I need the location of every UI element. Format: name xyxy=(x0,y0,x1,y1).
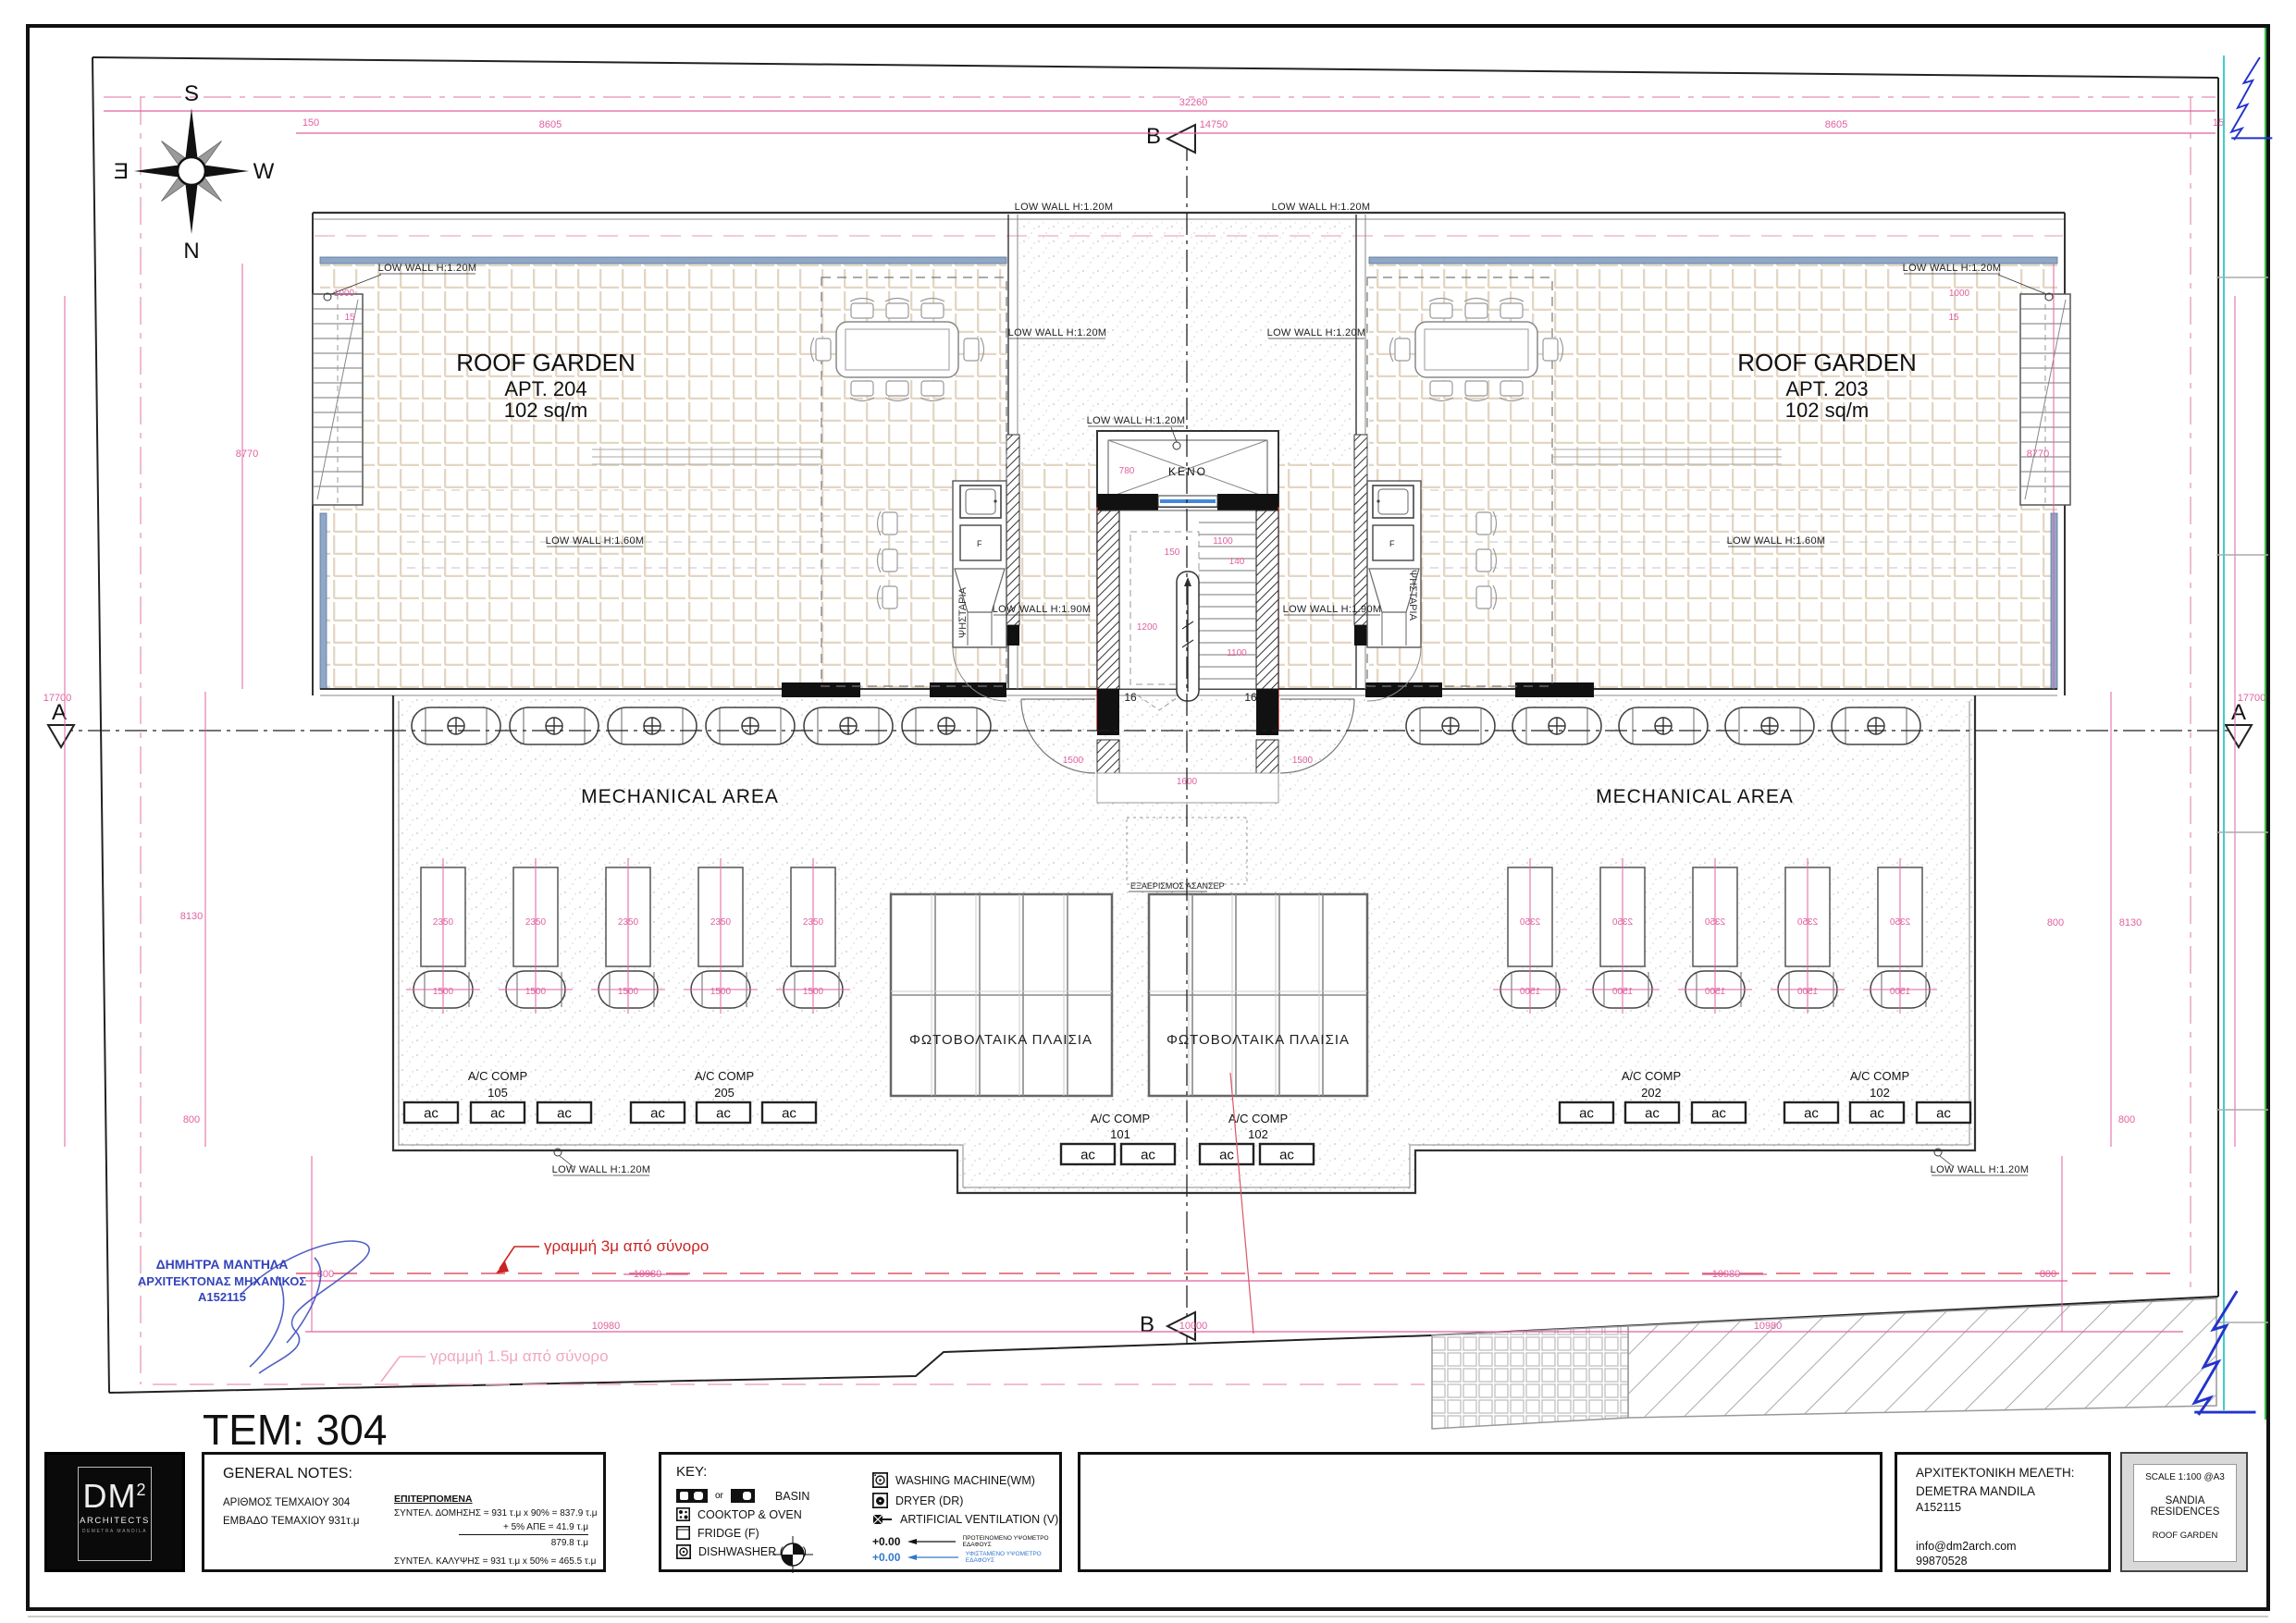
project-name-1: SANDIA xyxy=(2134,1495,2236,1506)
ac-comp-102r-number: 102 xyxy=(1870,1086,1890,1100)
logo-tagline: DEMETRA MANDILA xyxy=(79,1529,151,1534)
dim-8605-left: 8605 xyxy=(539,119,562,130)
key-or: or xyxy=(715,1491,723,1501)
notes-plot-area: ΕΜΒΑΔΟ ΤΕΜΑΧΙΟΥ 931τ.μ xyxy=(223,1516,360,1527)
bbq-label-left: ΨΗΣΤΑΡΙΑ xyxy=(957,586,969,638)
titleblock-logo: DM2 ARCHITECTS DEMETRA MANDILA xyxy=(44,1452,185,1572)
ac-comp-105-title: A/C COMP xyxy=(468,1069,527,1083)
key-level2-value: +0.00 xyxy=(872,1551,900,1564)
ac-comp-102c-number: 102 xyxy=(1248,1127,1268,1141)
notes-allowed-title: ΕΠΙΤΕΡΠΟΜΕΝΑ xyxy=(394,1494,473,1505)
dim-1200: 1200 xyxy=(1137,622,1158,633)
ac-comp-202-number: 202 xyxy=(1641,1086,1661,1100)
dim-17700-left: 17700 xyxy=(43,693,72,704)
dim-8130-right: 8130 xyxy=(2119,917,2142,928)
garden-left-title: ROOF GARDEN xyxy=(456,349,636,376)
titleblock-key: KEY: or BASIN COOKTOP & OVEN FRIDGE (F) … xyxy=(659,1452,1062,1572)
mechanical-area-right: MECHANICAL AREA xyxy=(1596,786,1794,807)
pv-label-left: ΦΩΤΟΒΟΛΤΑΙΚΑ ΠΛΑΙΣΙΑ xyxy=(909,1032,1092,1048)
dim-10980-c: 10980 xyxy=(592,1321,621,1332)
compass-icon: S N E W xyxy=(114,81,274,264)
dryer-icon xyxy=(872,1493,888,1508)
dim-800-topright: 800 xyxy=(2047,917,2064,928)
ac-comp-205-title: A/C COMP xyxy=(695,1069,754,1083)
line-15m-label: γραμμή 1.5μ από σύνορο xyxy=(430,1347,609,1365)
key-level1-value: +0.00 xyxy=(872,1535,900,1548)
section-marker-b-bottom: B xyxy=(1140,1312,1154,1337)
titleblock-empty xyxy=(1078,1452,1882,1572)
dim-150-top: 150 xyxy=(302,117,319,129)
road-hatch-area xyxy=(1432,1298,2216,1429)
ventilation-icon xyxy=(872,1514,893,1525)
dim-32260: 32260 xyxy=(1179,97,1208,108)
dim-10000: 10000 xyxy=(1179,1321,1208,1332)
bbq-label-right: ΨΗΣΤΑΡΙΑ xyxy=(1407,570,1418,621)
ac-comp-202-title: A/C COMP xyxy=(1622,1069,1681,1083)
notes-title: GENERAL NOTES: xyxy=(223,1466,352,1482)
dim-140: 140 xyxy=(1229,557,1245,567)
line-3m-label: γραμμή 3μ από σύνορο xyxy=(544,1237,709,1255)
logo-sup: 2 xyxy=(136,1481,146,1499)
architect-email: info@dm2arch.com xyxy=(1916,1540,2017,1553)
stair-right xyxy=(2020,294,2070,505)
low-wall-bottom-left: LOW WALL H:1.20M xyxy=(552,1164,651,1175)
low-wall-bottom-right: LOW WALL H:1.20M xyxy=(1931,1164,2030,1175)
dim-800-left: 800 xyxy=(183,1114,200,1125)
notes-plot-number: ΑΡΙΘΜΟΣ ΤΕΜΧΑΙΟΥ 304 xyxy=(223,1497,350,1508)
garden-right-apt: APT. 203 xyxy=(1785,377,1868,400)
basin-icon xyxy=(676,1489,708,1503)
level1-arrow-icon xyxy=(907,1538,955,1545)
notes-build-factor: ΣΥΝΤΕΛ. ΔΟΜΗΣΗΣ = 931 τ.μ x 90% = 837.9 … xyxy=(394,1508,598,1518)
dim-150c: 150 xyxy=(1165,547,1180,558)
dim-780: 780 xyxy=(1119,466,1135,476)
ac-comp-102c-title: A/C COMP xyxy=(1228,1112,1288,1125)
dim-800-bottomright: 800 xyxy=(2040,1269,2056,1280)
pv-label-right: ΦΩΤΟΒΟΛΤΑΙΚΑ ΠΛΑΙΣΙΑ xyxy=(1167,1032,1350,1048)
titleblock-project: SCALE 1:100 @A3 SANDIA RESIDENCES ROOF G… xyxy=(2120,1452,2248,1572)
low-wall-160-left: LOW WALL H:1.60M xyxy=(546,535,645,547)
project-name-2: RESIDENCES xyxy=(2134,1506,2236,1518)
void-label: ΚΕΝΟ xyxy=(1168,465,1207,478)
fridge-label-left: F xyxy=(977,539,982,548)
dim-8130-left: 8130 xyxy=(180,911,203,922)
architect-registration: A152115 xyxy=(1916,1501,1961,1514)
washing-machine-icon xyxy=(872,1472,888,1488)
floor-plan-drawing: 2350 1500 2350 1500 ac xyxy=(0,0,2296,1623)
target-symbol-icon xyxy=(772,1536,813,1573)
fridge-icon xyxy=(676,1526,690,1540)
logo-dm: DM xyxy=(82,1477,136,1515)
project-sheet-name: ROOF GARDEN xyxy=(2134,1531,2236,1541)
ac-comp-105-number: 105 xyxy=(488,1086,508,1100)
compass-w: W xyxy=(253,159,274,184)
dishwasher-icon xyxy=(676,1544,691,1559)
architect-phone: 99870528 xyxy=(1916,1555,1968,1568)
garden-left-apt: APT. 204 xyxy=(504,377,586,400)
low-wall-mid-left: LOW WALL H:1.20M xyxy=(1008,327,1107,338)
notes-coverage: ΣΥΝΤΕΛ. ΚΑΛΥΨΗΣ = 931 τ.μ x 50% = 465.5 … xyxy=(394,1556,596,1567)
logo-architects: ARCHITECTS xyxy=(79,1516,151,1526)
architectural-sheet: { "sheet": {"tem": "TEM: 304"}, "markers… xyxy=(0,0,2296,1623)
stair-left xyxy=(313,294,363,505)
compass-s: S xyxy=(184,81,199,106)
architect-study-title: ΑΡΧΙΤΕΚΤΟΝΙΚΗ ΜΕΛΕΤΗ: xyxy=(1916,1466,2075,1480)
architect-stamp: ΔΗΜΗΤΡΑ ΜΑΝΤΗΛΑ ΑΡΧΙΤΕΚΤΟΝΑΣ ΜΗΧΑΝΙΚΟΣ Α… xyxy=(138,1241,369,1373)
project-scale: SCALE 1:100 @A3 xyxy=(2134,1472,2236,1482)
notes-ape: + 5% ΑΠΕ = 41.9 τ.μ xyxy=(459,1522,588,1535)
cooktop-icon xyxy=(676,1507,690,1521)
key-wm-label: WASHING MACHINE(WM) xyxy=(895,1474,1035,1487)
key-dryer-label: DRYER (DR) xyxy=(895,1494,963,1507)
key-level1-text: ΠΡΟΤΕΙΝΟΜΕΝΟ ΥΨΟΜΕΤΡΟ ΕΔΑΦΟΥΣ xyxy=(963,1535,1062,1548)
section-marker-a-right: A xyxy=(2231,700,2246,725)
dim-15-top: 15 xyxy=(2213,117,2224,129)
compass-e: E xyxy=(114,159,129,184)
low-wall-190-right: LOW WALL H:1.90M xyxy=(1283,604,1382,615)
dim-1100a: 1100 xyxy=(1213,536,1233,547)
dim-1000-right: 1000 xyxy=(1949,289,1970,299)
dim-8605-right: 8605 xyxy=(1825,119,1847,130)
key-cooktop-label: COOKTOP & OVEN xyxy=(697,1508,802,1521)
dim-1500-right: 1500 xyxy=(1292,756,1314,766)
stamp-reg: Α152115 xyxy=(198,1290,246,1304)
ac-comp-101-title: A/C COMP xyxy=(1091,1112,1150,1125)
low-wall-190-left: LOW WALL H:1.90M xyxy=(993,604,1092,615)
dim-8770-right: 8770 xyxy=(2027,449,2049,460)
stair-steps-left: 16 xyxy=(1124,691,1137,704)
mechanical-area-left: MECHANICAL AREA xyxy=(581,786,779,807)
low-wall-mid-right: LOW WALL H:1.20M xyxy=(1267,327,1366,338)
dim-1000-left: 1000 xyxy=(334,289,355,299)
pv-array-right: ΦΩΤΟΒΟΛΤΑΙΚΑ ΠΛΑΙΣΙΑ xyxy=(1149,894,1367,1096)
garden-right-title: ROOF GARDEN xyxy=(1737,349,1917,376)
titleblock-architect: ΑΡΧΙΤΕΚΤΟΝΙΚΗ ΜΕΛΕΤΗ: DEMETRA MANDILA A1… xyxy=(1895,1452,2111,1572)
key-basin-label: BASIN xyxy=(775,1490,810,1503)
stair-steps-right: 16 xyxy=(1244,691,1257,704)
dim-1100b: 1100 xyxy=(1227,648,1247,658)
architect-name: DEMETRA MANDILA xyxy=(1916,1484,2035,1498)
low-wall-160-right: LOW WALL H:1.60M xyxy=(1727,535,1826,547)
pv-array-left: ΦΩΤΟΒΟΛΤΑΙΚΑ ΠΛΑΙΣΙΑ xyxy=(891,894,1112,1096)
garden-right-area: 102 sq/m xyxy=(1785,399,1870,422)
elevator-vent-label: ΕΞΑΕΡΙΣΜΟΣ ΑΣΑΝΣΕΡ xyxy=(1130,881,1225,891)
titleblock-notes: GENERAL NOTES: ΑΡΙΘΜΟΣ ΤΕΜΧΑΙΟΥ 304 ΕΜΒΑ… xyxy=(202,1452,606,1572)
notes-total: 879.8 τ.μ xyxy=(459,1538,588,1548)
plot-number-label: TEM: 304 xyxy=(203,1406,387,1454)
low-wall-top1: LOW WALL H:1.20M xyxy=(1015,202,1114,213)
key-vent-label: ARTIFICIAL VENTILATION (V) xyxy=(900,1513,1058,1526)
compass-n: N xyxy=(183,239,199,264)
low-wall-top2: LOW WALL H:1.20M xyxy=(1272,202,1371,213)
garden-left-area: 102 sq/m xyxy=(504,399,588,422)
dim-1500-left: 1500 xyxy=(1063,756,1084,766)
ac-comp-205-number: 205 xyxy=(714,1086,734,1100)
dim-800-right: 800 xyxy=(2118,1114,2135,1125)
fridge-label-right: F xyxy=(1389,539,1395,548)
dim-10980-d: 10980 xyxy=(1754,1321,1783,1332)
stamp-name: ΔΗΜΗΤΡΑ ΜΑΝΤΗΛΑ xyxy=(156,1257,289,1272)
dim-15-left: 15 xyxy=(344,313,355,323)
level2-arrow-icon xyxy=(907,1554,957,1561)
key-fridge-label: FRIDGE (F) xyxy=(697,1527,759,1540)
dim-17700-right: 17700 xyxy=(2238,693,2266,704)
dim-8770-left: 8770 xyxy=(236,449,258,460)
dim-15-right: 15 xyxy=(1948,313,1959,323)
key-title: KEY: xyxy=(676,1464,707,1480)
low-wall-stair-left: LOW WALL H:1.20M xyxy=(378,263,477,274)
ac-comp-102r-title: A/C COMP xyxy=(1850,1069,1909,1083)
low-wall-core: LOW WALL H:1.20M xyxy=(1087,415,1186,426)
key-level2-text: ΥΦΙΣΤΑΜΕΝΟ ΥΨΟΜΕΤΡΟ ΕΔΑΦΟΥΣ xyxy=(966,1551,1062,1564)
low-wall-stair-right: LOW WALL H:1.20M xyxy=(1903,263,2002,274)
ac-comp-101-number: 101 xyxy=(1110,1127,1130,1141)
section-marker-b-top: B xyxy=(1146,124,1161,149)
dim-800-bottomleft: 800 xyxy=(317,1269,334,1280)
dim-14750: 14750 xyxy=(1200,119,1228,130)
basin-icon-alt xyxy=(731,1489,755,1503)
